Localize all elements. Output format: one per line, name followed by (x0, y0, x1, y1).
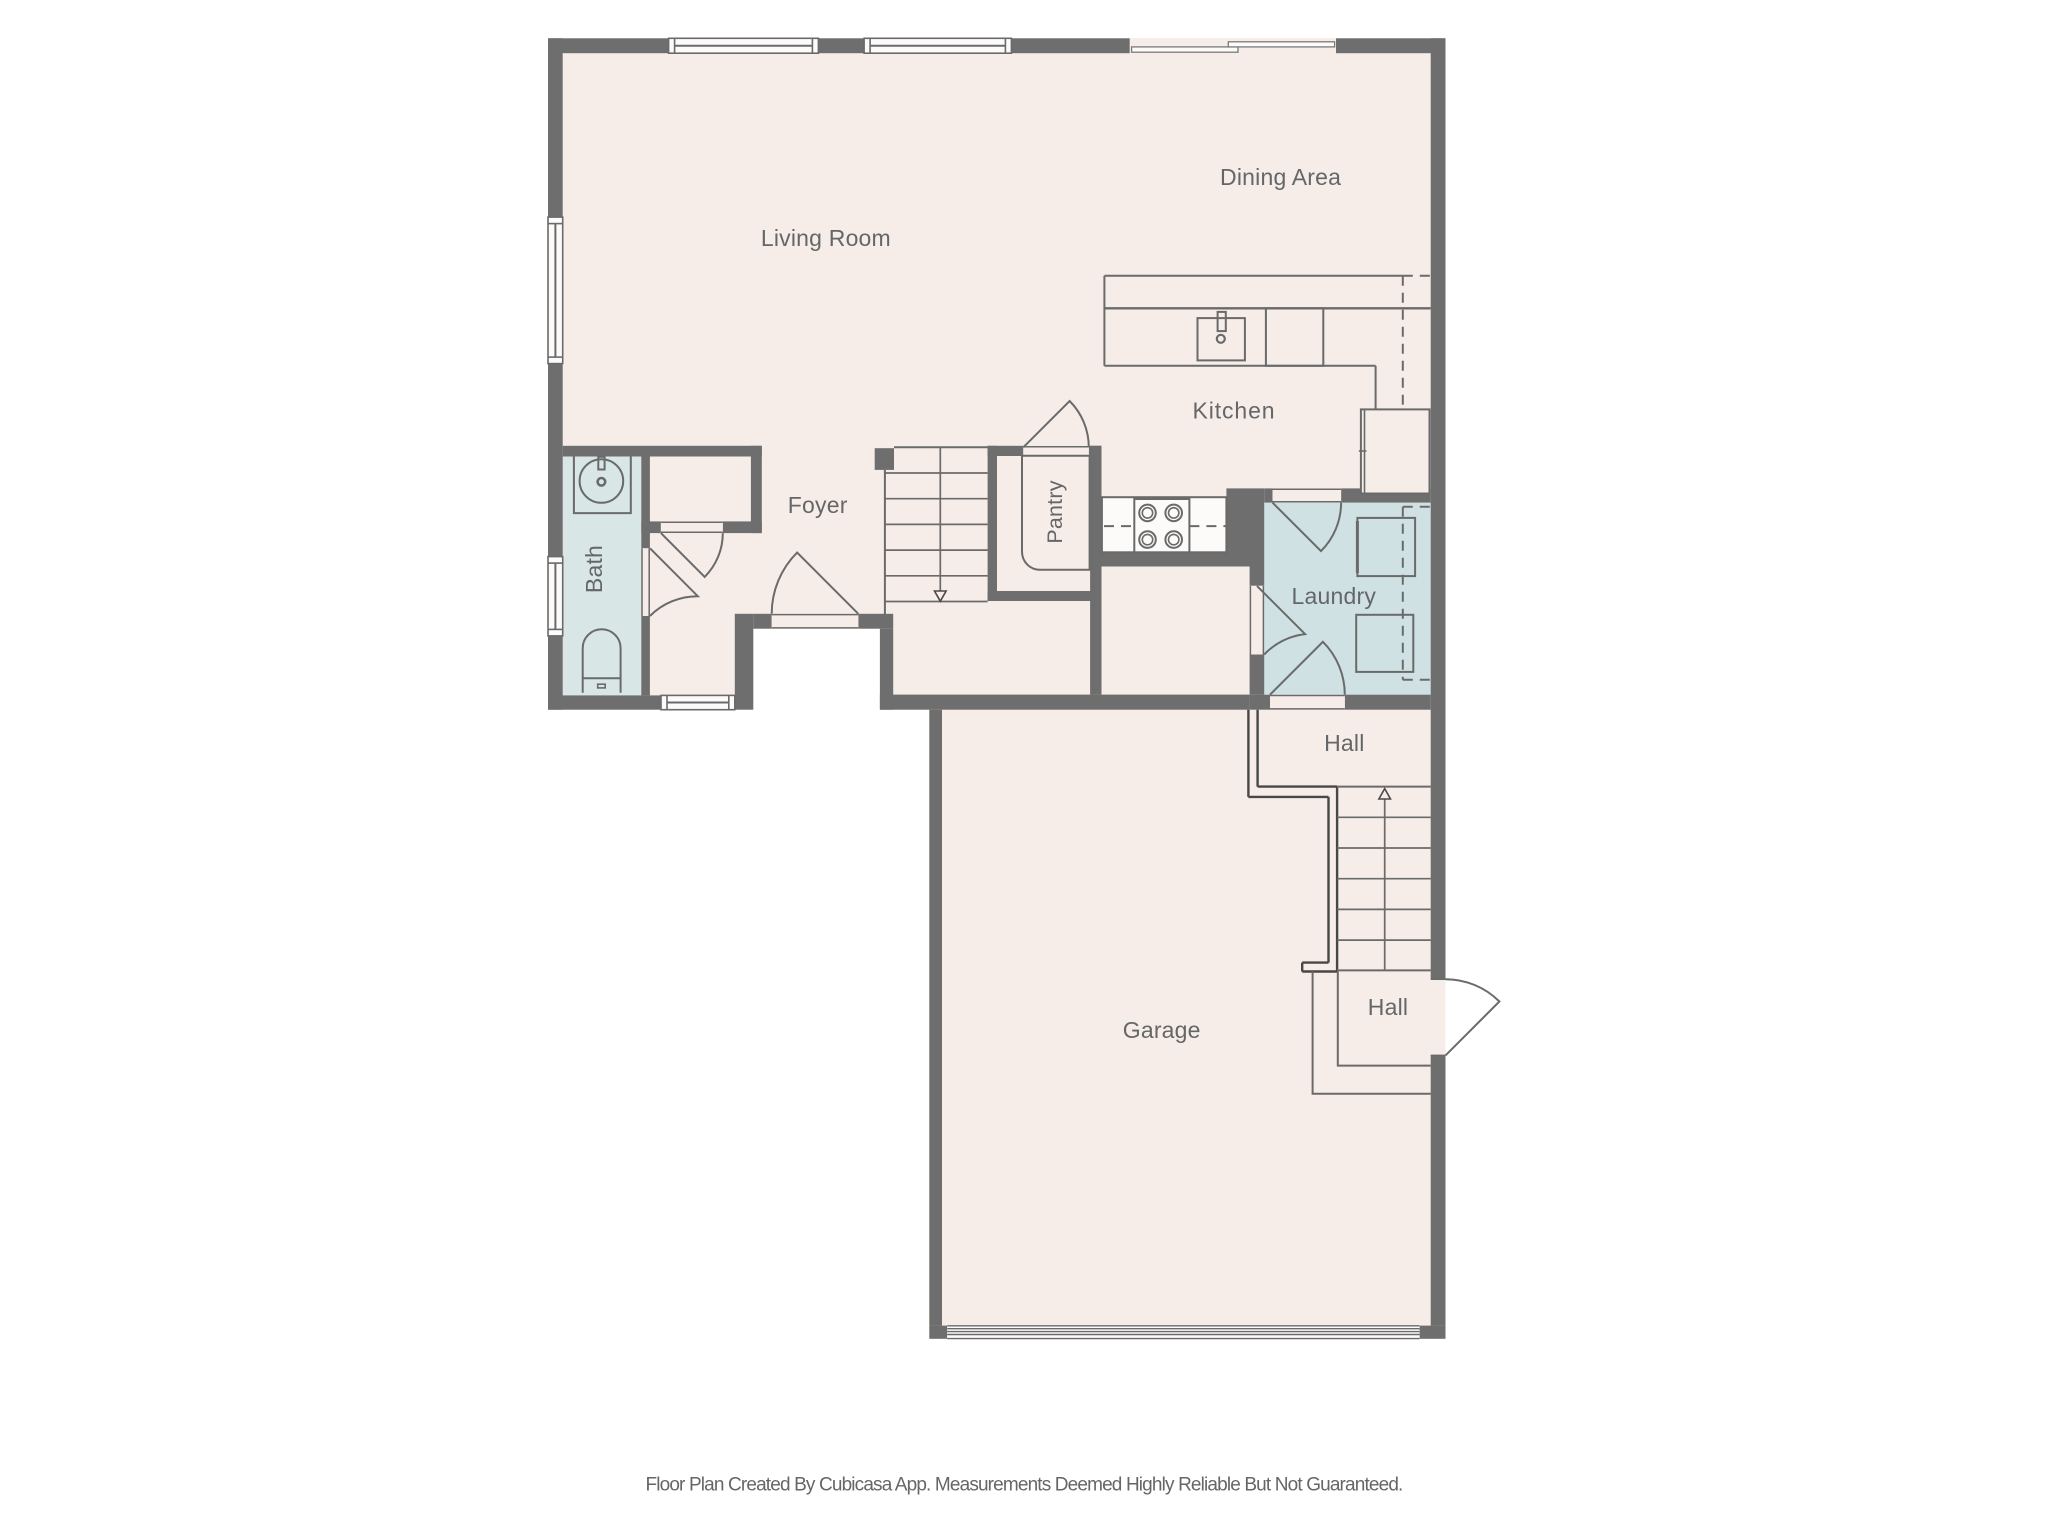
svg-text:Pantry: Pantry (1043, 480, 1067, 543)
svg-text:Garage: Garage (1123, 1017, 1201, 1043)
svg-text:Laundry: Laundry (1292, 583, 1377, 609)
svg-text:Bath: Bath (581, 545, 607, 593)
svg-text:Floor Plan Created By Cubicasa: Floor Plan Created By Cubicasa App. Meas… (646, 1475, 1403, 1496)
svg-text:Hall: Hall (1368, 994, 1408, 1020)
svg-text:Dining Area: Dining Area (1220, 164, 1341, 190)
svg-text:Hall: Hall (1324, 730, 1364, 756)
svg-text:Foyer: Foyer (788, 492, 848, 518)
svg-text:Living Room: Living Room (761, 225, 891, 251)
svg-text:Kitchen: Kitchen (1192, 398, 1275, 424)
